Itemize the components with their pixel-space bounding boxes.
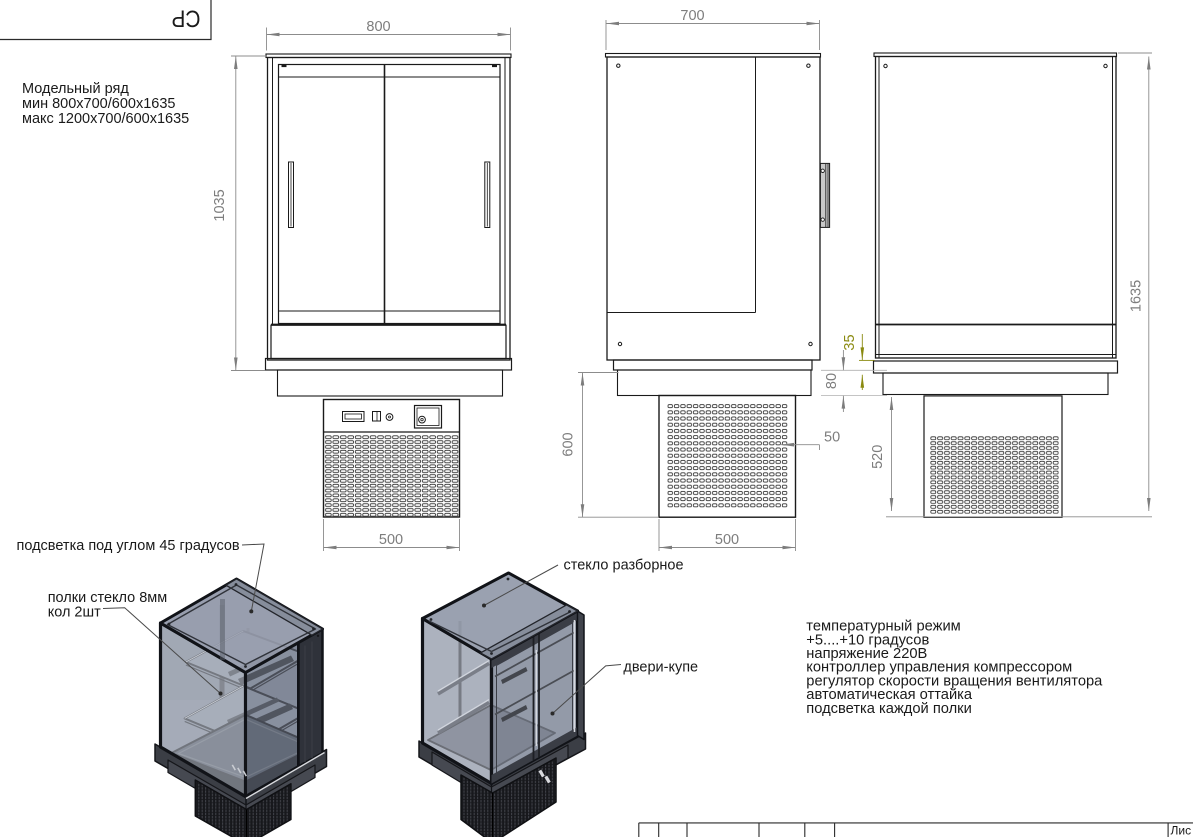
svg-text:подсветка под углом 45 градусо: подсветка под углом 45 градусов — [17, 538, 240, 554]
svg-text:кол 2шт: кол 2шт — [48, 605, 101, 621]
svg-text:80: 80 — [824, 373, 840, 389]
svg-text:Лис: Лис — [1171, 824, 1192, 837]
svg-text:1635: 1635 — [1129, 280, 1145, 312]
svg-text:600: 600 — [561, 432, 577, 456]
svg-text:СР: СР — [172, 5, 201, 32]
svg-text:стекло разборное: стекло разборное — [564, 558, 684, 574]
svg-text:Модельный ряд: Модельный ряд — [22, 81, 129, 97]
svg-text:50: 50 — [824, 430, 840, 446]
svg-text:700: 700 — [680, 8, 704, 24]
svg-text:500: 500 — [715, 532, 739, 548]
svg-text:800: 800 — [366, 19, 390, 35]
svg-text:1035: 1035 — [212, 189, 228, 221]
svg-text:макс 1200х700/600х1635: макс 1200х700/600х1635 — [22, 111, 189, 127]
svg-text:двери-купе: двери-купе — [623, 659, 698, 675]
svg-text:подсветка каждой полки: подсветка каждой полки — [806, 701, 972, 717]
svg-text:35: 35 — [842, 334, 858, 350]
svg-text:520: 520 — [870, 445, 886, 469]
svg-text:мин 800х700/600х1635: мин 800х700/600х1635 — [22, 96, 175, 112]
svg-text:500: 500 — [379, 532, 403, 548]
